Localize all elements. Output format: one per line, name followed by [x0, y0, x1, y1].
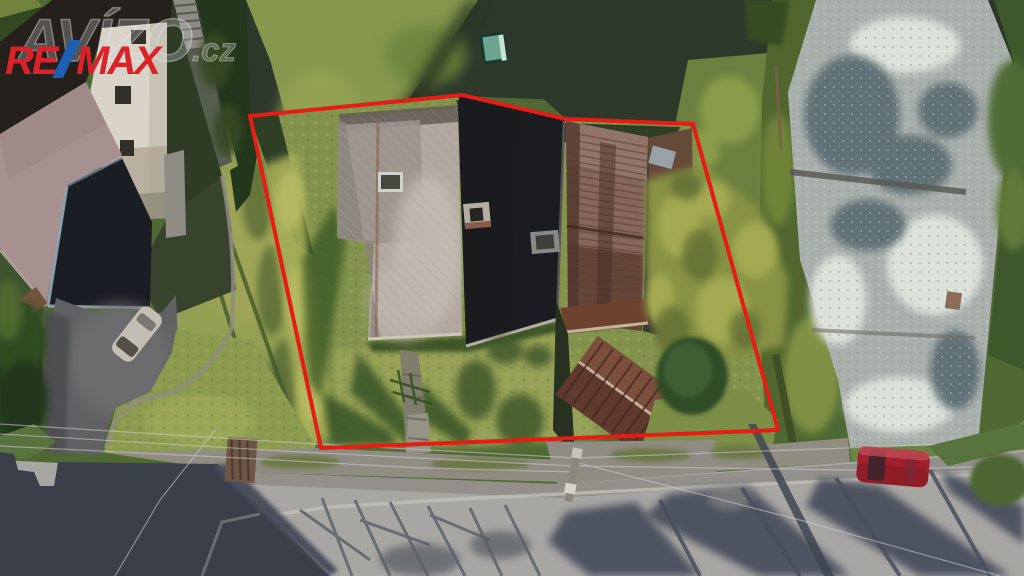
svg-text:MAX: MAX: [76, 39, 163, 83]
svg-text:RE: RE: [5, 39, 60, 83]
svg-text:.cz: .cz: [192, 31, 237, 68]
